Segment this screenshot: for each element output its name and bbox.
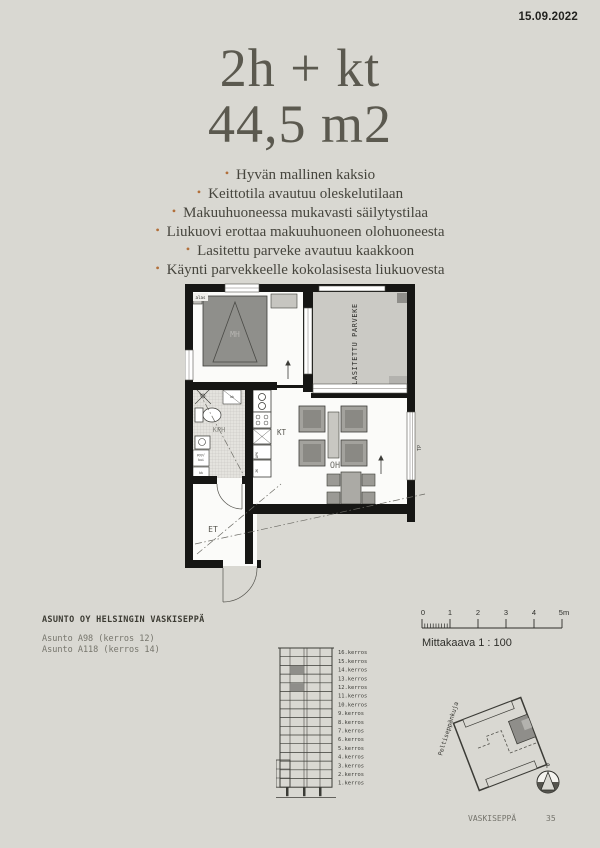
bullet-icon: •	[172, 204, 176, 218]
bedroom-label: MH	[230, 330, 240, 339]
scale-tick-label: 4	[532, 608, 536, 617]
feature-text: Liukuovi erottaa makuuhuoneen olohuonees…	[167, 224, 445, 240]
scale-bar: 0 1 2 3 4 5m Mittakaava 1 : 100	[420, 606, 580, 652]
laundry-label: kui	[198, 458, 204, 462]
project-info: ASUNTO OY HELSINGIN VASKISEPPÄ Asunto A9…	[42, 615, 205, 655]
floor-label: 10.kerros	[338, 702, 367, 708]
apartment-ref: Asunto A118 (kerros 14)	[42, 645, 205, 655]
scale-ticks: 0 1 2 3 4 5m	[421, 608, 569, 617]
floor-plan-drawing: alas MH KPH KT OH ET LASITETTU PARVEKE T…	[185, 282, 429, 604]
feature-item: •Liukuovi erottaa makuuhuoneen olohuonee…	[0, 223, 600, 242]
sink-icon	[195, 436, 210, 449]
floor-label: 2.kerros	[338, 772, 364, 778]
kitchenette-label: KT	[277, 428, 287, 437]
bullet-icon: •	[155, 223, 159, 237]
feature-text: Käynti parvekkeelle kokolasisesta liukuo…	[167, 262, 445, 278]
feature-item: •Hyvän mallinen kaksio	[0, 166, 600, 185]
apartment-ref: Asunto A98 (kerros 12)	[42, 634, 205, 644]
floor-label: 3.kerros	[338, 763, 364, 769]
floor-label: 4.kerros	[338, 755, 364, 761]
scale-tick-label: 5m	[559, 608, 569, 617]
highlighted-floor-cells	[290, 666, 303, 692]
living-room-label: OH	[330, 461, 340, 471]
floor-label: 15.kerros	[338, 659, 367, 665]
entrance-door-arc	[223, 568, 257, 602]
footer-page-number: 35	[546, 814, 556, 823]
apartment-title: 2h + kt 44,5 m2	[0, 40, 600, 152]
laundry-label: pyy/	[197, 453, 205, 457]
floor-labels: 16.kerros 15.kerros 14.kerros 13.kerros …	[338, 650, 367, 787]
feature-text: Lasitettu parveke avautuu kaakkoon	[197, 243, 414, 259]
floor-label: 1.kerros	[338, 781, 364, 787]
scale-caption: Mittakaava 1 : 100	[422, 637, 512, 649]
apartment-location-marker	[508, 714, 535, 744]
toilet-tank	[195, 408, 203, 422]
date-stamp: 15.09.2022	[518, 11, 578, 23]
apartment-list: Asunto A98 (kerros 12) Asunto A118 (kerr…	[42, 634, 205, 655]
building-posts	[286, 787, 322, 796]
feature-list: •Hyvän mallinen kaksio •Keittotila avaut…	[0, 166, 600, 280]
scale-tick-label: 1	[448, 608, 452, 617]
apartment-area: 44,5 m2	[0, 96, 600, 152]
north-label: P	[546, 762, 550, 770]
floor-label: 11.kerros	[338, 694, 367, 700]
feature-text: Makuuhuoneessa mukavasti säilytystilaa	[183, 205, 428, 221]
bathroom-label: KPH	[213, 426, 226, 434]
feature-item: •Lasitettu parveke avautuu kaakkoon	[0, 242, 600, 261]
floor-label: 5.kerros	[338, 746, 364, 752]
balcony-label: LASITETTU PARVEKE	[351, 303, 359, 384]
bullet-icon: •	[155, 261, 159, 275]
feature-item: •Makuuhuoneessa mukavasti säilytystilaa	[0, 204, 600, 223]
floor-label: 6.kerros	[338, 737, 364, 743]
bullet-icon: •	[197, 185, 201, 199]
floor-label: 16.kerros	[338, 650, 367, 656]
building-footprint	[453, 697, 546, 790]
feature-item: •Käynti parvekkeelle kokolasisesta liuku…	[0, 261, 600, 280]
brochure-page: 15.09.2022 2h + kt 44,5 m2 •Hyvän mallin…	[0, 0, 600, 848]
highlight-floor-12	[290, 683, 303, 691]
housing-company-name: ASUNTO OY HELSINGIN VASKISEPPÄ	[42, 615, 205, 625]
feature-text: Keittotila avautuu oleskelutilaan	[208, 186, 403, 202]
street-label: Peltiseppänkuja	[437, 701, 460, 757]
apartment-type: 2h + kt	[0, 40, 600, 96]
building-elevation: 16.kerros 15.kerros 14.kerros 13.kerros …	[276, 642, 394, 806]
floor-label: 9.kerros	[338, 711, 364, 717]
floor-label: 8.kerros	[338, 720, 364, 726]
floor-label: 12.kerros	[338, 685, 367, 691]
balcony-floor	[311, 291, 409, 397]
bullet-icon: •	[186, 242, 190, 256]
kitchen-fixtures	[253, 390, 271, 477]
dishwasher-label: APK	[255, 451, 259, 458]
floor-label: 7.kerros	[338, 729, 364, 735]
scale-tick-label: 3	[504, 608, 508, 617]
bullet-icon: •	[225, 166, 229, 180]
closet-label: kk	[199, 471, 203, 475]
building-outline	[276, 648, 336, 798]
feature-text: Hyvän mallinen kaksio	[236, 167, 375, 183]
floor-label: 14.kerros	[338, 668, 367, 674]
scale-tick-label: 2	[476, 608, 480, 617]
stairs-label: alas	[195, 295, 206, 300]
scale-ruler	[422, 619, 562, 628]
balcony-abbr-label: TP	[417, 445, 423, 451]
toilet-icon	[203, 408, 221, 422]
highlight-floor-14	[290, 666, 303, 674]
closet-label: kk	[230, 395, 234, 399]
site-plan: Peltiseppänkuja P	[428, 684, 578, 806]
hallway-label: ET	[208, 525, 218, 534]
scale-tick-label: 0	[421, 608, 425, 617]
footer-project-name: VASKISEPPÄ	[468, 814, 516, 823]
feature-item: •Keittotila avautuu oleskelutilaan	[0, 185, 600, 204]
floor-label: 13.kerros	[338, 676, 367, 682]
